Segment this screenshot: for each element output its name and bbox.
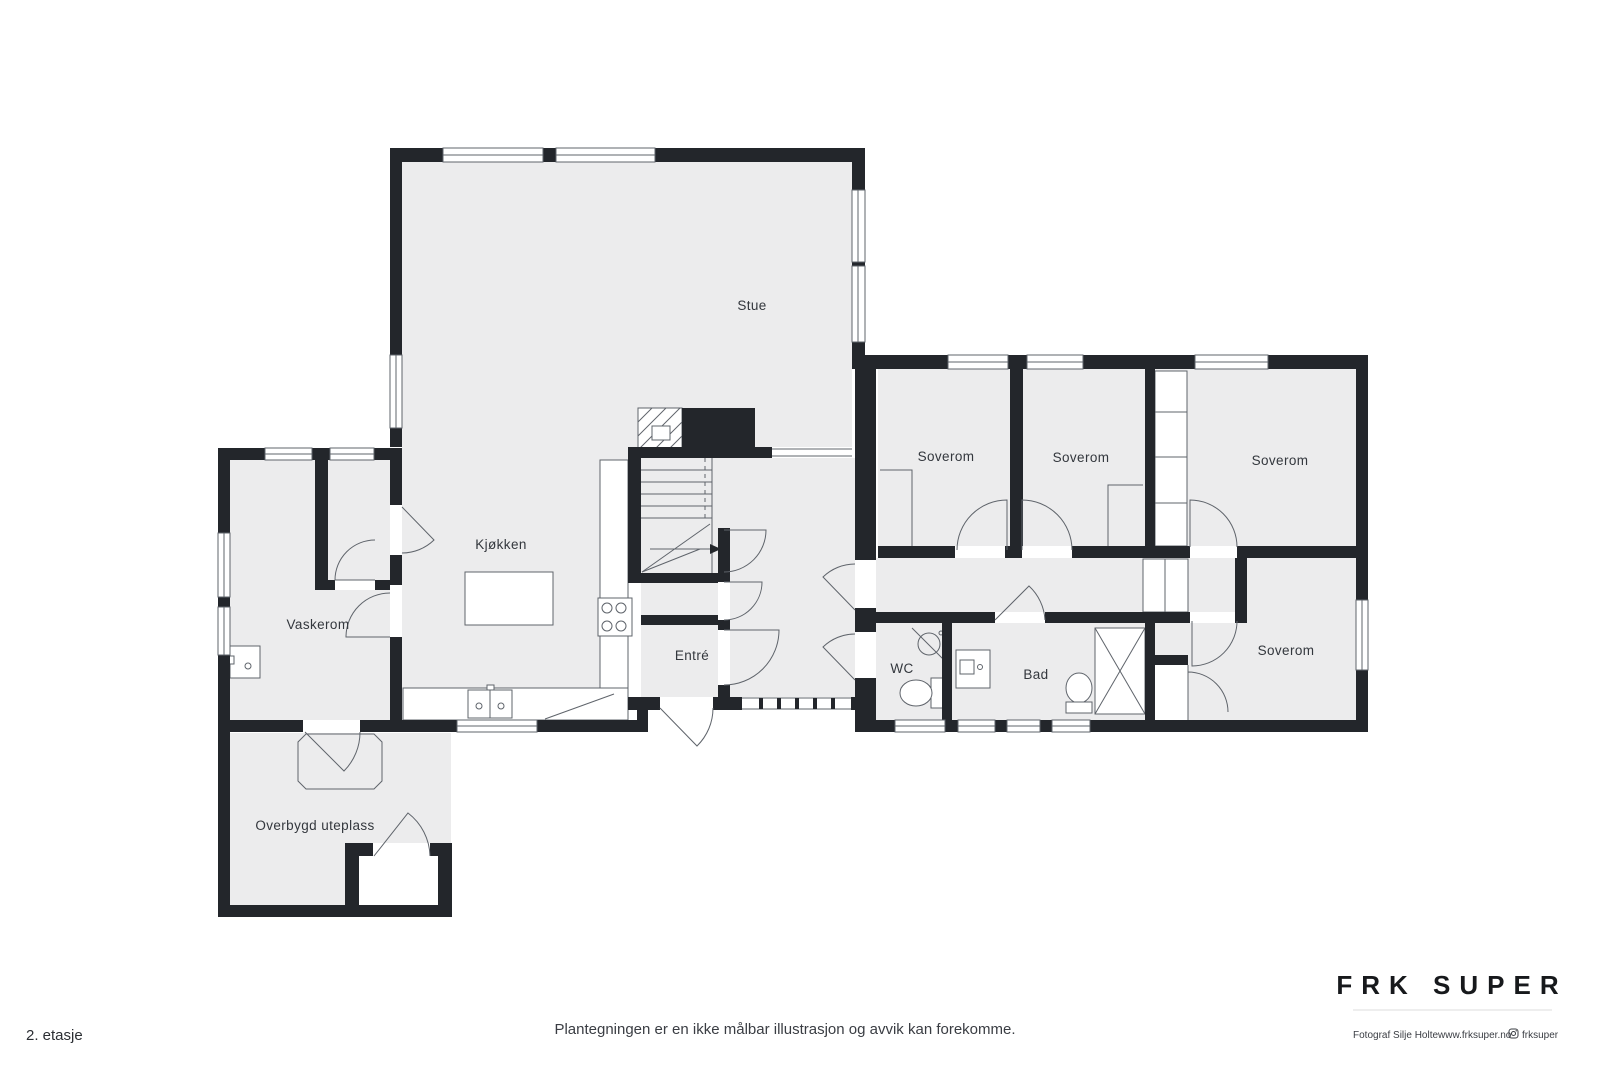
window [948,355,1008,369]
window [852,190,865,262]
window [852,266,865,342]
window [958,720,995,732]
wc-toilet-icon [900,678,944,708]
photographer-credit: Fotograf Silje Holte [1353,1030,1438,1041]
kitchen-island [465,572,553,625]
floor-plan: Stue Kjøkken Vaskerom Entré WC Bad Sover… [0,0,1600,1067]
window [895,720,945,732]
brand-logo: FRK SUPER [1336,970,1567,1000]
closet-shelves [1155,371,1187,546]
kitchen-counter-side [600,460,628,688]
window [556,148,655,162]
window [457,720,537,732]
fireplace [638,408,755,452]
room-label-wc: WC [890,661,913,676]
stove-icon [598,598,632,636]
window [1052,720,1090,732]
room-label-bad: Bad [1023,667,1048,682]
website-link[interactable]: www.frksuper.no [1437,1030,1512,1041]
window [443,148,543,162]
laundry-sink-icon [226,646,260,678]
room-label-soverom-4: Soverom [1258,643,1315,658]
disclaimer-text: Plantegningen er en ikke målbar illustra… [554,1021,1015,1038]
room-label-kjokken: Kjøkken [475,537,527,552]
bath-toilet-icon [1066,673,1092,713]
room-floor-stair [641,458,718,573]
window [218,533,230,597]
window [265,448,312,460]
window [390,355,402,428]
stue-hall-opening [772,447,852,458]
room-floor-bod [328,460,390,580]
room-label-soverom-1: Soverom [918,449,975,464]
window [1027,355,1083,369]
window [1007,720,1040,732]
room-label-soverom-3: Soverom [1252,453,1309,468]
room-floor-nisje [641,583,718,615]
room-floor-soverom-4b [1247,558,1356,623]
footer: 2. etasje Plantegningen er en ikke målba… [26,970,1568,1044]
room-floor-stue [402,162,852,447]
room-label-stue: Stue [737,298,766,313]
closet-interior [1155,665,1188,720]
kitchen-sink-icon [468,685,512,718]
room-label-soverom-2: Soverom [1053,450,1110,465]
shower-icon [1095,628,1145,714]
bath-vanity-icon [956,650,990,688]
room-label-uteplass: Overbygd uteplass [255,818,374,833]
railing [738,697,855,710]
room-floor-hall [718,458,855,697]
floor-title: 2. etasje [26,1027,83,1044]
instagram-handle[interactable]: frksuper [1522,1030,1559,1041]
door-swing-entrance [660,708,713,746]
kitchen-counter-bottom [403,688,628,720]
room-label-entre: Entré [675,648,709,663]
hall-wardrobe [1143,559,1188,612]
page: Stue Kjøkken Vaskerom Entré WC Bad Sover… [0,0,1600,1067]
fireplace-block [682,408,755,451]
room-label-vaskerom: Vaskerom [287,617,350,632]
window [330,448,374,460]
window [218,607,230,655]
protrusion-interior [359,856,438,905]
window [1356,600,1368,670]
window [1195,355,1268,369]
